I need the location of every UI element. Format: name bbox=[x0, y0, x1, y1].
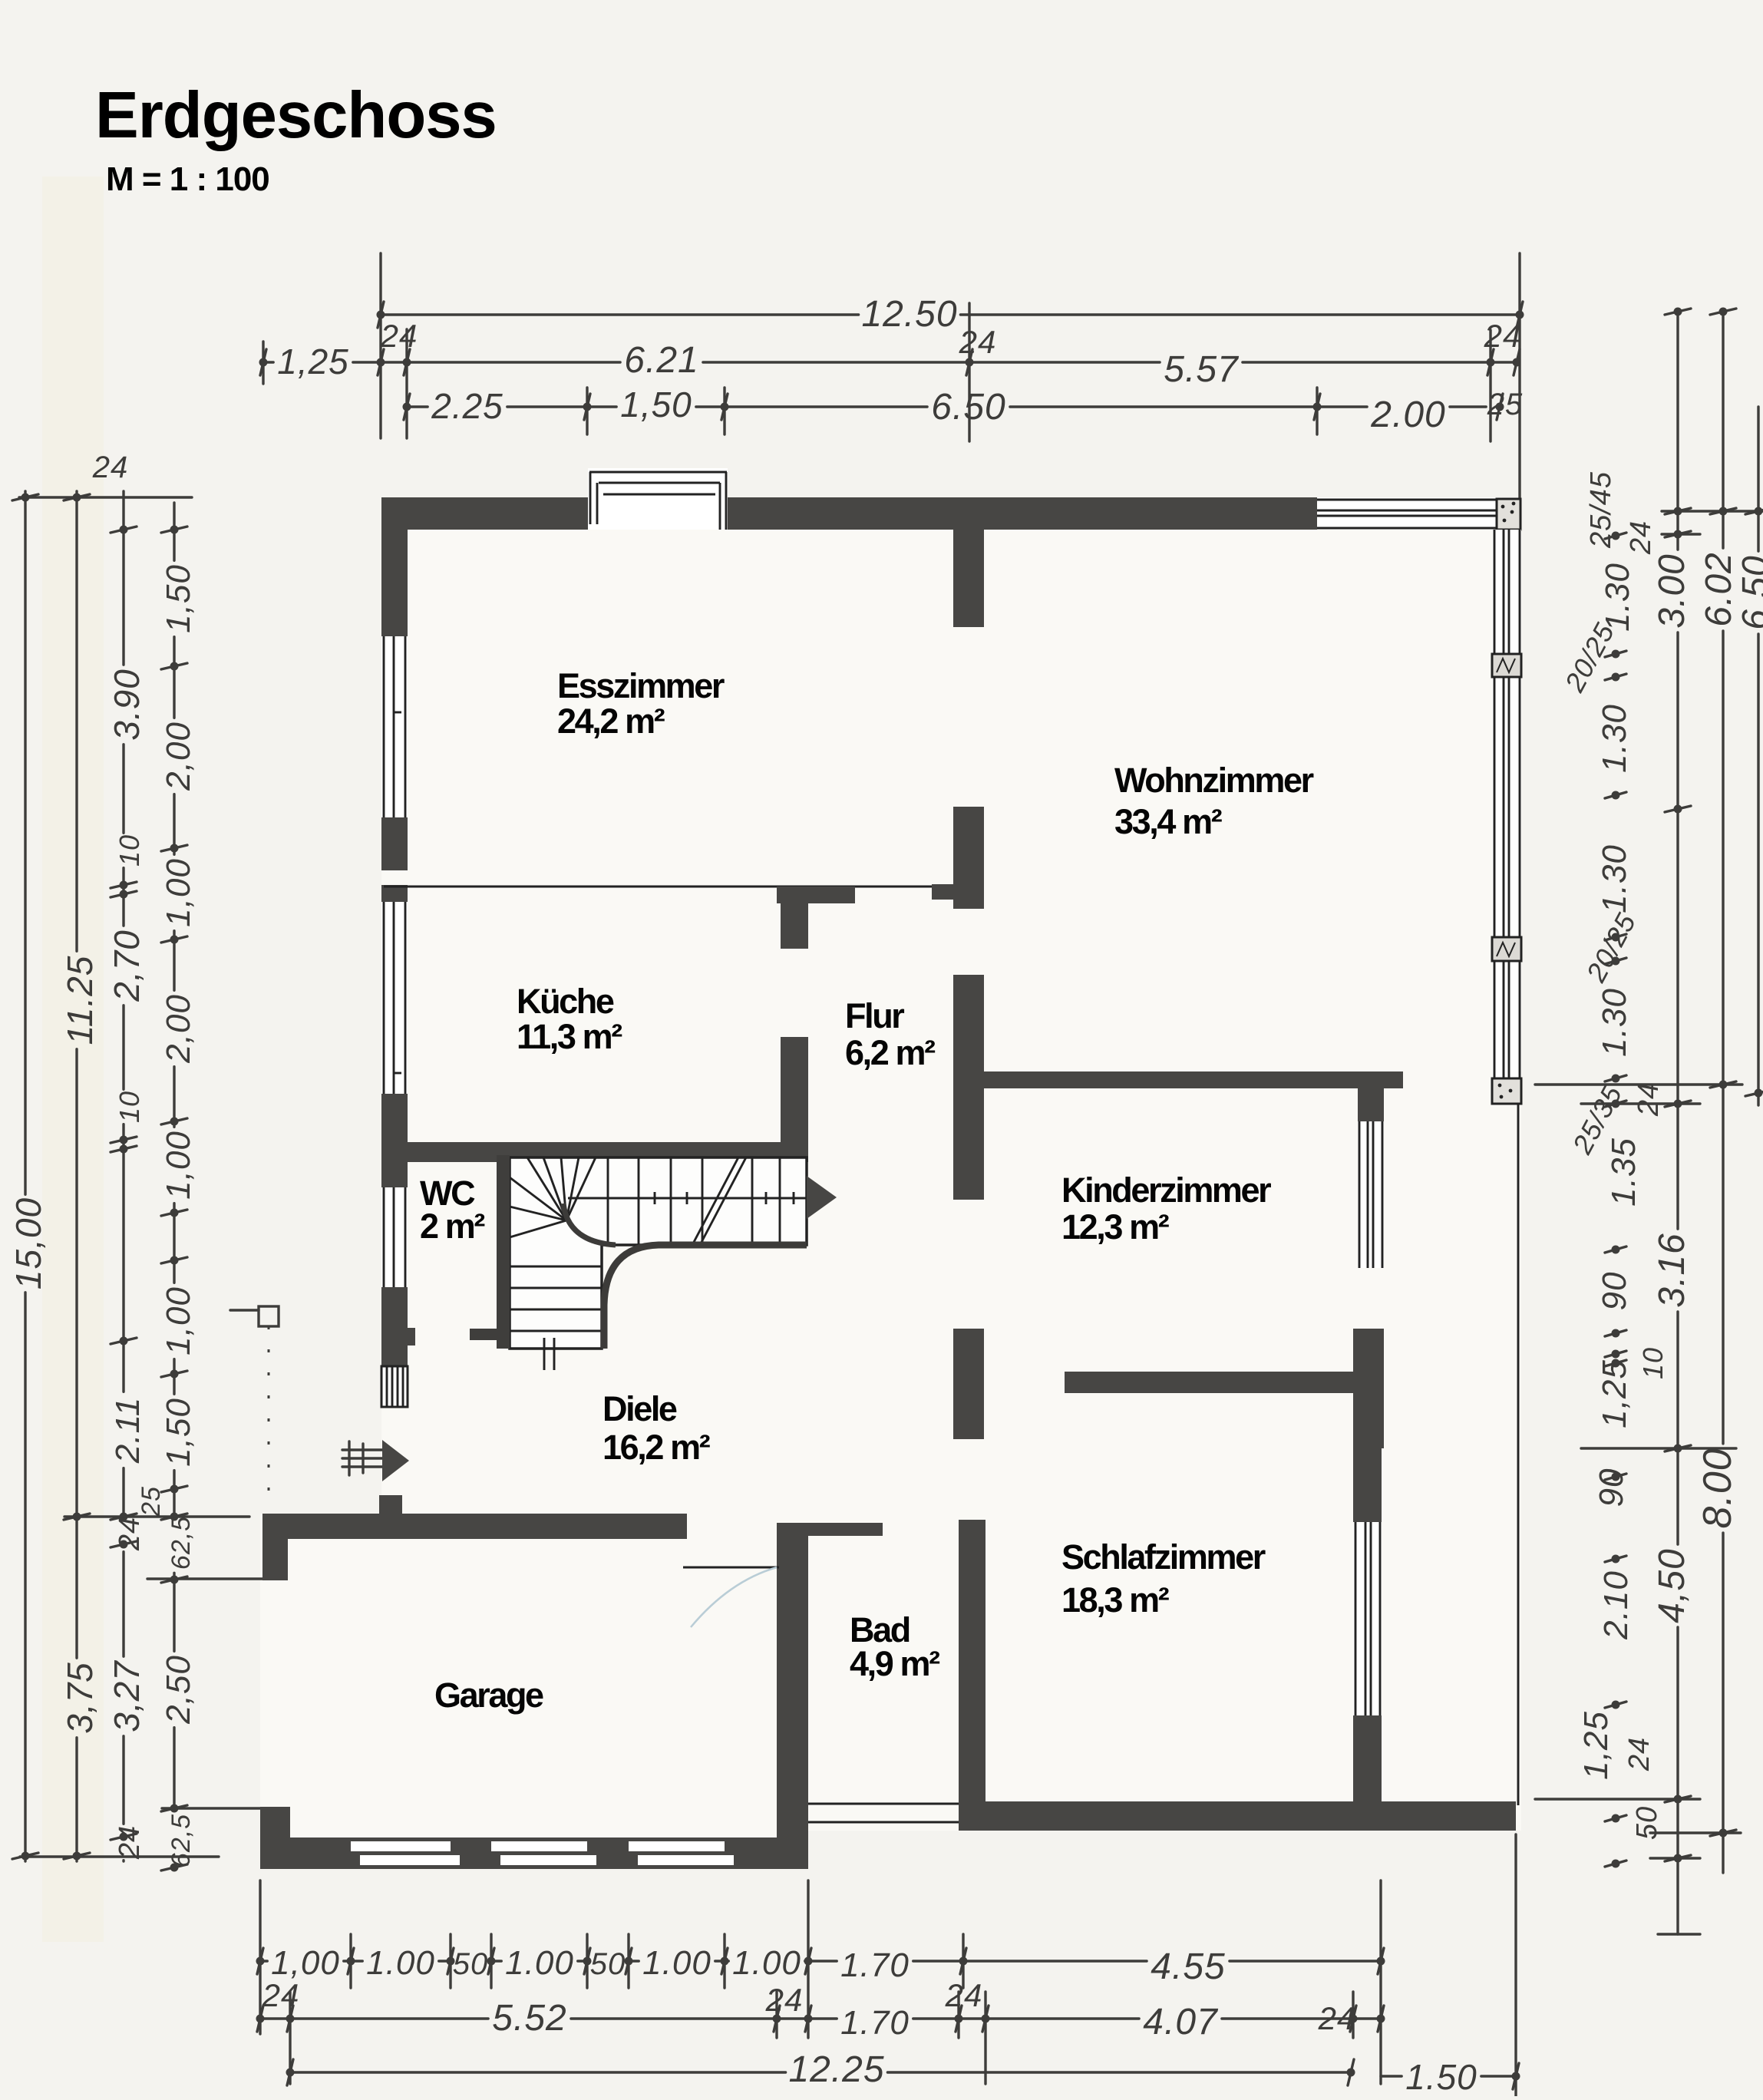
svg-text:3.90: 3.90 bbox=[107, 669, 147, 741]
svg-text:3,27: 3,27 bbox=[107, 1660, 147, 1732]
svg-text:18,3 m²: 18,3 m² bbox=[1061, 1580, 1170, 1620]
svg-text:50: 50 bbox=[453, 1947, 489, 1981]
svg-text:90: 90 bbox=[1596, 1272, 1633, 1311]
svg-text:25/45: 25/45 bbox=[1585, 471, 1617, 549]
svg-text:Flur: Flur bbox=[845, 996, 904, 1035]
svg-text:2.11: 2.11 bbox=[109, 1397, 147, 1464]
svg-text:1.00: 1.00 bbox=[642, 1944, 711, 1982]
svg-text:8.00: 8.00 bbox=[1695, 1448, 1740, 1528]
svg-text:24: 24 bbox=[114, 1825, 146, 1860]
svg-text:12.25: 12.25 bbox=[788, 2049, 884, 2090]
svg-text:Küche: Küche bbox=[517, 982, 614, 1021]
svg-text:1.00: 1.00 bbox=[732, 1944, 801, 1982]
svg-text:62,5: 62,5 bbox=[167, 1516, 196, 1570]
svg-text:33,4 m²: 33,4 m² bbox=[1114, 802, 1223, 841]
svg-text:16,2 m²: 16,2 m² bbox=[603, 1428, 711, 1467]
svg-text:90: 90 bbox=[1593, 1468, 1630, 1507]
svg-text:24,2 m²: 24,2 m² bbox=[557, 702, 665, 741]
svg-text:3.00: 3.00 bbox=[1652, 553, 1692, 628]
svg-text:25: 25 bbox=[137, 1486, 166, 1517]
svg-text:1.35: 1.35 bbox=[1605, 1137, 1642, 1207]
svg-text:1,00: 1,00 bbox=[160, 1286, 197, 1355]
svg-text:1,25: 1,25 bbox=[1596, 1359, 1633, 1428]
svg-text:50: 50 bbox=[1631, 1806, 1663, 1840]
svg-text:24: 24 bbox=[1318, 2000, 1356, 2036]
svg-text:2,00: 2,00 bbox=[160, 721, 197, 791]
svg-text:1,50: 1,50 bbox=[160, 564, 197, 633]
svg-text:Wohnzimmer: Wohnzimmer bbox=[1114, 761, 1314, 800]
svg-text:1.30: 1.30 bbox=[1596, 988, 1633, 1057]
svg-text:24: 24 bbox=[945, 1977, 983, 2013]
svg-text:12.50: 12.50 bbox=[861, 294, 957, 335]
svg-text:24: 24 bbox=[1625, 520, 1657, 555]
svg-text:5.52: 5.52 bbox=[492, 1998, 566, 2039]
svg-text:10: 10 bbox=[1637, 1347, 1669, 1379]
svg-text:1.00: 1.00 bbox=[366, 1944, 435, 1982]
svg-text:6.02: 6.02 bbox=[1699, 552, 1739, 626]
svg-text:Erdgeschoss: Erdgeschoss bbox=[95, 79, 497, 152]
svg-text:1.50: 1.50 bbox=[1405, 2057, 1477, 2096]
svg-text:1.70: 1.70 bbox=[840, 2004, 910, 2042]
svg-text:2.25: 2.25 bbox=[431, 386, 503, 426]
svg-text:1,50: 1,50 bbox=[620, 385, 692, 424]
svg-text:6.21: 6.21 bbox=[624, 340, 698, 381]
svg-text:6,2 m²: 6,2 m² bbox=[845, 1033, 936, 1072]
svg-text:24: 24 bbox=[959, 324, 997, 360]
svg-text:Garage: Garage bbox=[434, 1676, 543, 1715]
svg-text:1,00: 1,00 bbox=[160, 1131, 197, 1200]
svg-text:25: 25 bbox=[1487, 388, 1524, 421]
svg-text:1,25: 1,25 bbox=[277, 342, 349, 381]
svg-text:10: 10 bbox=[114, 1091, 145, 1123]
svg-text:24: 24 bbox=[262, 1977, 300, 2013]
svg-text:2.10: 2.10 bbox=[1597, 1570, 1635, 1640]
svg-text:5.57: 5.57 bbox=[1164, 349, 1240, 390]
svg-text:Kinderzimmer: Kinderzimmer bbox=[1061, 1171, 1271, 1210]
svg-text:62,5: 62,5 bbox=[167, 1814, 196, 1867]
svg-text:1,25: 1,25 bbox=[1577, 1711, 1615, 1780]
svg-text:10: 10 bbox=[114, 834, 145, 867]
svg-text:3,75: 3,75 bbox=[60, 1662, 100, 1734]
svg-text:2,00: 2,00 bbox=[160, 994, 197, 1064]
svg-text:1,00: 1,00 bbox=[160, 858, 197, 927]
svg-text:Diele: Diele bbox=[603, 1389, 677, 1428]
svg-text:4.55: 4.55 bbox=[1151, 1946, 1225, 1987]
svg-text:6,50: 6,50 bbox=[1735, 555, 1763, 629]
svg-text:2,50: 2,50 bbox=[160, 1655, 197, 1725]
svg-text:3.16: 3.16 bbox=[1652, 1233, 1692, 1307]
svg-text:11,3 m²: 11,3 m² bbox=[517, 1017, 622, 1056]
svg-text:15,00: 15,00 bbox=[8, 1197, 48, 1289]
svg-text:24: 24 bbox=[765, 1982, 804, 2018]
svg-text:1,00: 1,00 bbox=[271, 1944, 340, 1982]
svg-text:1.30: 1.30 bbox=[1596, 844, 1633, 913]
svg-text:50: 50 bbox=[590, 1947, 626, 1981]
svg-text:Schlafzimmer: Schlafzimmer bbox=[1061, 1537, 1266, 1577]
svg-text:12,3 m²: 12,3 m² bbox=[1061, 1207, 1170, 1246]
svg-text:2 m²: 2 m² bbox=[420, 1207, 485, 1246]
svg-text:1,50: 1,50 bbox=[160, 1398, 197, 1467]
svg-text:6.50: 6.50 bbox=[931, 387, 1005, 428]
svg-text:2.00: 2.00 bbox=[1370, 395, 1445, 435]
svg-text:1.70: 1.70 bbox=[840, 1946, 910, 1984]
svg-text:4,50: 4,50 bbox=[1652, 1548, 1692, 1623]
svg-text:24: 24 bbox=[1633, 1082, 1665, 1117]
svg-text:M = 1 : 100: M = 1 : 100 bbox=[106, 160, 269, 198]
svg-text:1.00: 1.00 bbox=[505, 1944, 574, 1982]
svg-text:24: 24 bbox=[1484, 318, 1522, 354]
svg-text:Esszimmer: Esszimmer bbox=[557, 666, 725, 705]
svg-text:24: 24 bbox=[114, 1517, 146, 1551]
svg-text:1.30: 1.30 bbox=[1596, 704, 1633, 773]
svg-text:24: 24 bbox=[1623, 1737, 1656, 1771]
svg-text:11.25: 11.25 bbox=[60, 956, 100, 1045]
svg-text:1.30: 1.30 bbox=[1599, 563, 1636, 632]
svg-text:2,70: 2,70 bbox=[107, 929, 147, 1002]
svg-text:4,9 m²: 4,9 m² bbox=[850, 1644, 940, 1683]
svg-text:24: 24 bbox=[380, 318, 418, 354]
svg-text:4.07: 4.07 bbox=[1143, 2002, 1219, 2042]
svg-text:24: 24 bbox=[92, 451, 129, 484]
